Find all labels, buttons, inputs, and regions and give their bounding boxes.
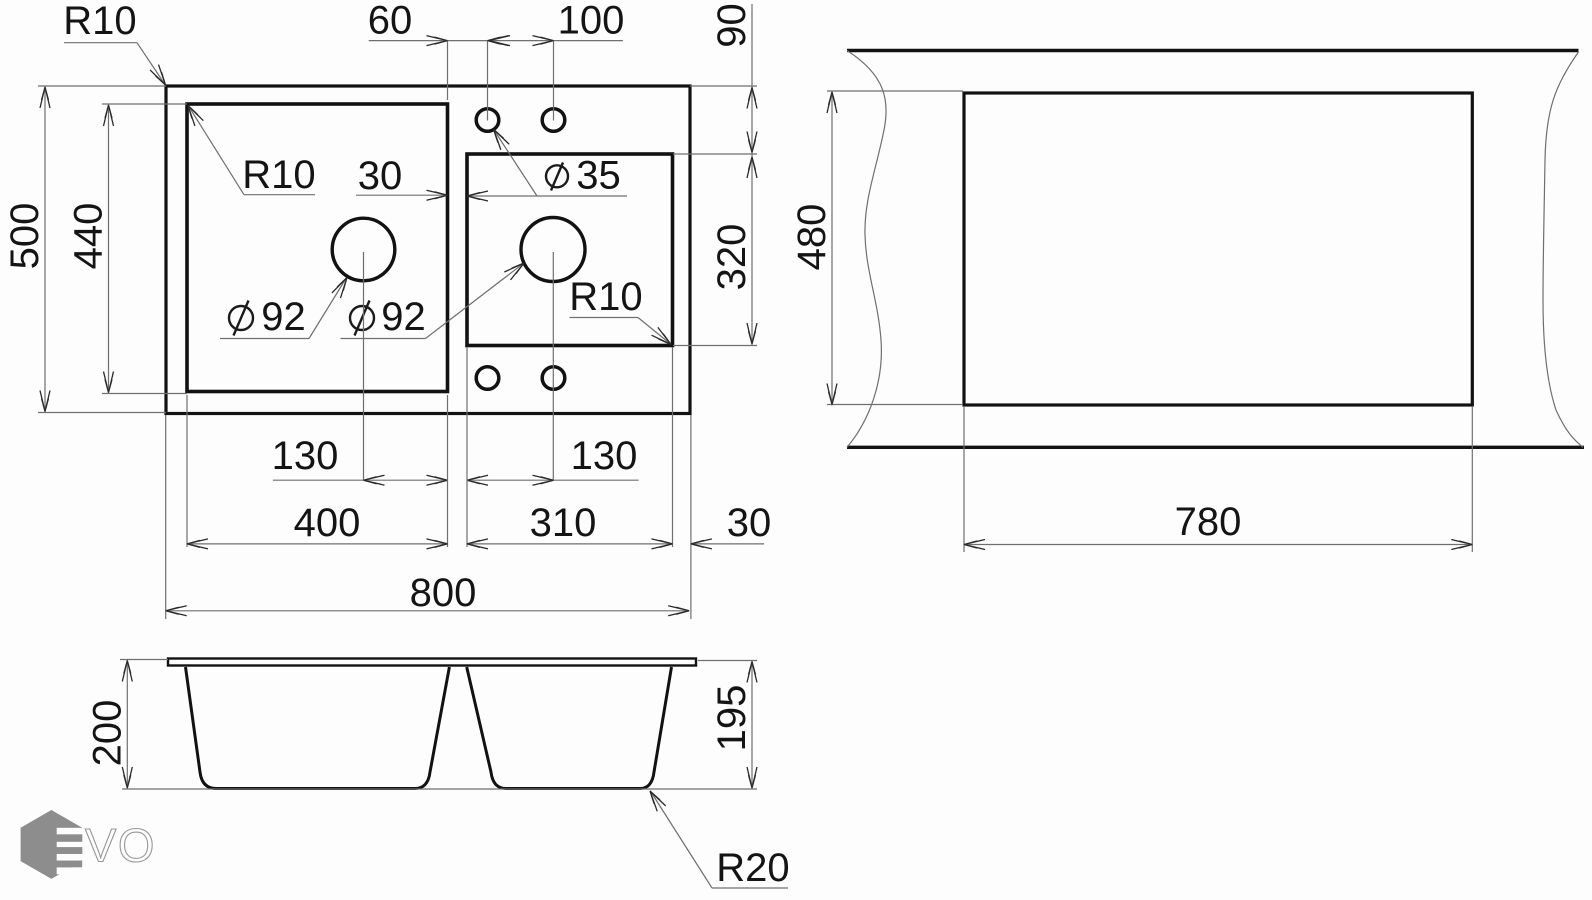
svg-text:130: 130 (272, 434, 339, 478)
svg-text:30: 30 (727, 501, 772, 545)
svg-text:440: 440 (67, 203, 111, 270)
svg-text:R10: R10 (242, 153, 315, 197)
svg-text:92: 92 (261, 295, 306, 339)
svg-text:400: 400 (294, 501, 361, 545)
svg-text:R10: R10 (63, 0, 136, 43)
svg-text:310: 310 (530, 501, 597, 545)
svg-text:R10: R10 (569, 275, 642, 319)
svg-text:200: 200 (85, 700, 129, 767)
svg-text:60: 60 (368, 0, 413, 43)
svg-text:90: 90 (710, 3, 754, 48)
svg-text:800: 800 (410, 571, 477, 615)
svg-text:VO: VO (85, 819, 156, 872)
svg-text:R20: R20 (716, 846, 789, 890)
svg-text:35: 35 (576, 154, 621, 198)
svg-text:100: 100 (558, 0, 625, 43)
svg-text:130: 130 (571, 434, 638, 478)
svg-text:780: 780 (1175, 500, 1242, 544)
svg-text:320: 320 (710, 224, 754, 291)
svg-text:30: 30 (358, 154, 403, 198)
svg-text:480: 480 (790, 204, 834, 271)
svg-text:195: 195 (710, 685, 754, 752)
svg-text:500: 500 (3, 203, 47, 270)
svg-text:92: 92 (381, 295, 426, 339)
